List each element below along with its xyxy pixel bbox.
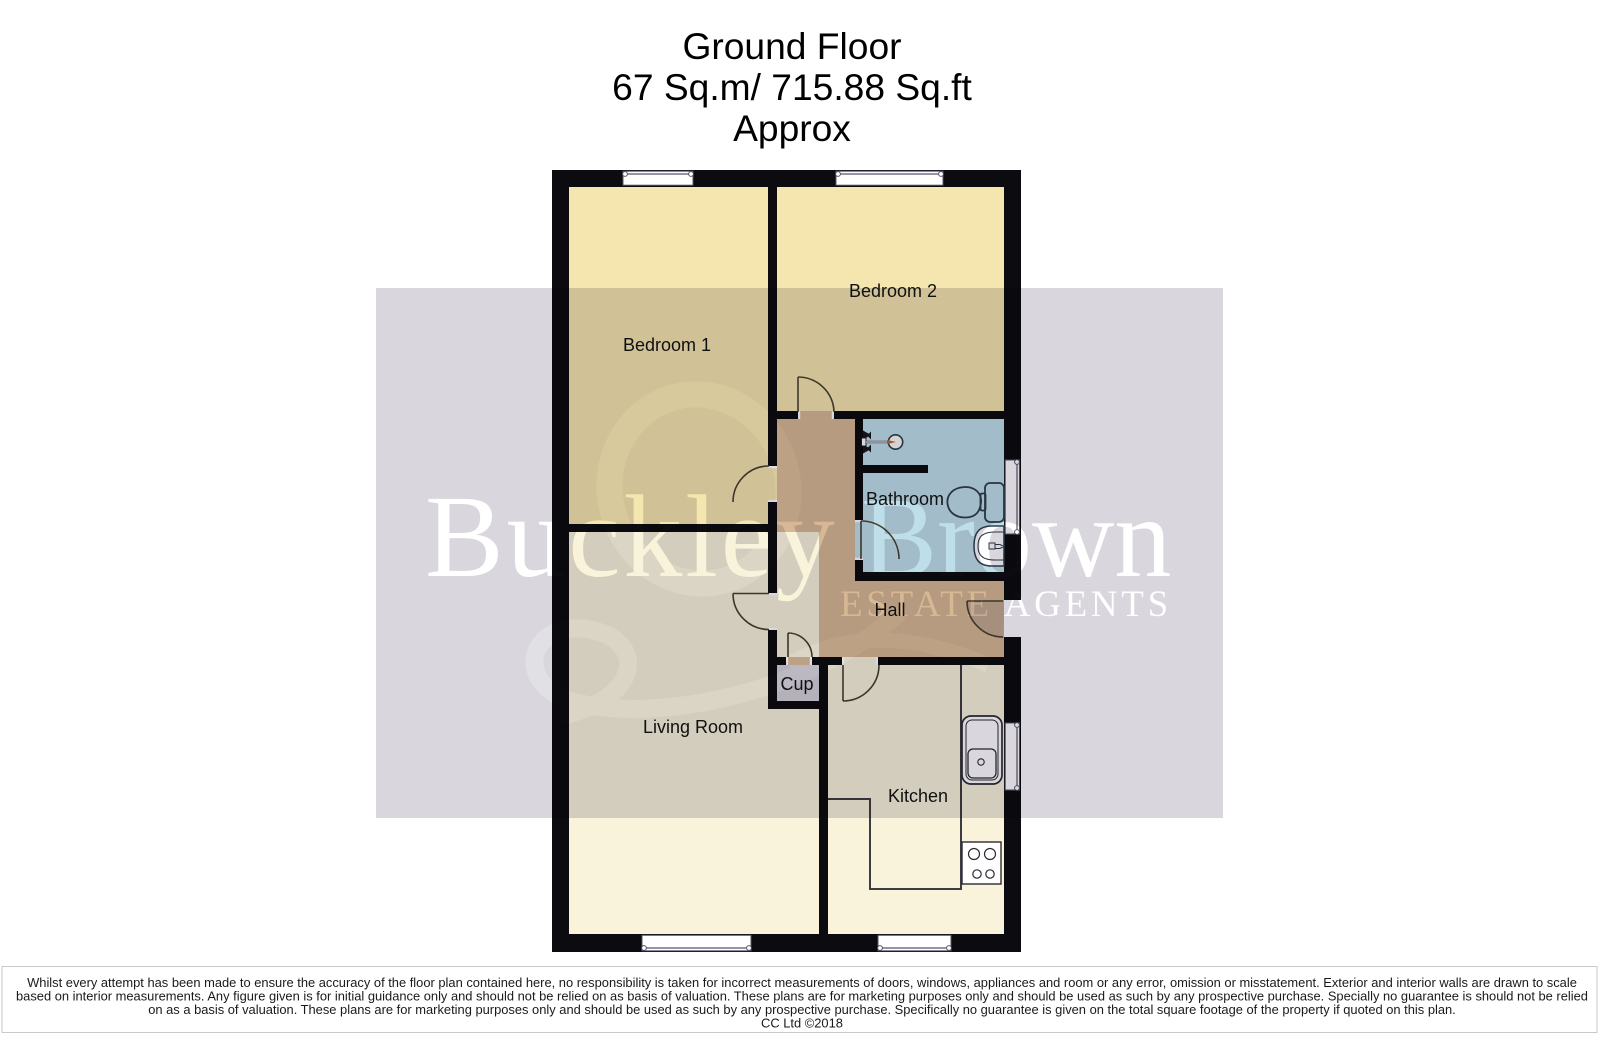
svg-text:Approx: Approx (733, 107, 851, 149)
svg-text:CC Ltd ©2018: CC Ltd ©2018 (761, 1016, 843, 1031)
svg-text:Ground Floor: Ground Floor (682, 25, 901, 67)
svg-text:67 Sq.m/ 715.88 Sq.ft: 67 Sq.m/ 715.88 Sq.ft (612, 66, 972, 108)
